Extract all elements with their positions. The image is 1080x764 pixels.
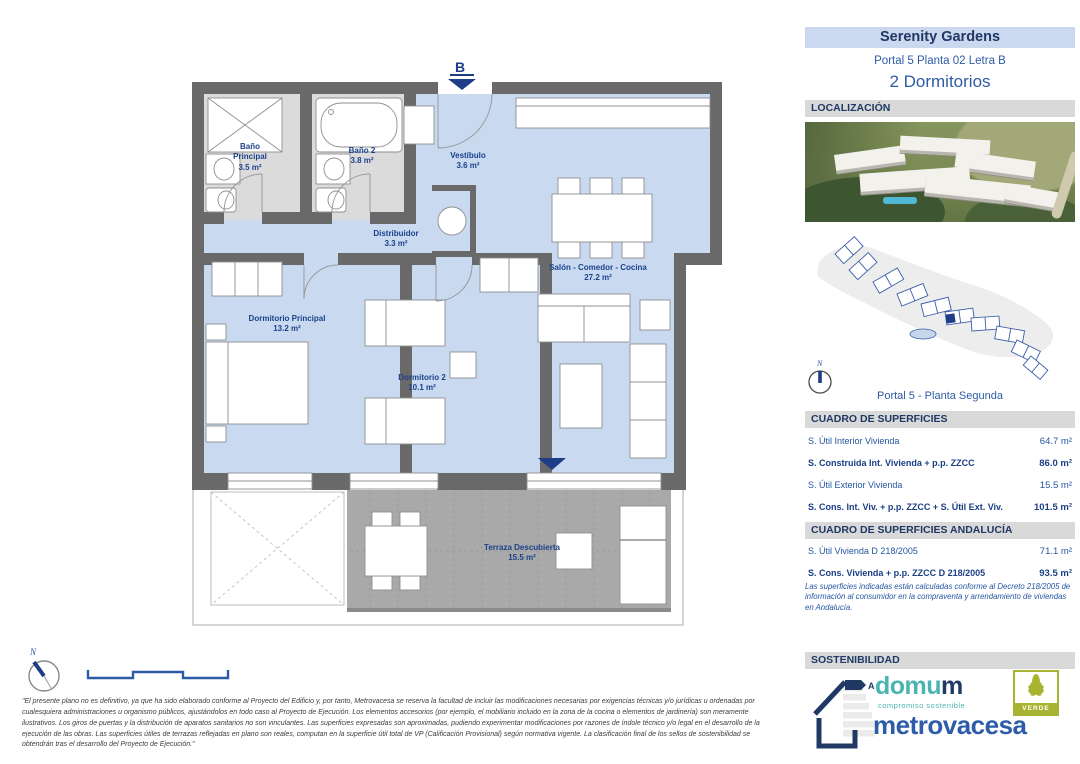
highlighted-unit xyxy=(945,313,955,323)
decree-note: Las superficies indicadas están calculad… xyxy=(805,582,1075,613)
coffee-table xyxy=(560,364,602,428)
pergola-area xyxy=(211,492,344,605)
window-principal xyxy=(228,473,312,489)
table-row: S. Cons. Int. Viv. + p.p. ZZCC + S. Útil… xyxy=(805,496,1075,518)
surfaces-andalucia-table: S. Útil Vivienda D 218/2005 71.1 m² S. C… xyxy=(805,540,1075,584)
sun-lounger xyxy=(620,506,666,604)
hall-closet xyxy=(404,106,434,144)
room-label-bano-principal: Baño Principal 3.5 m² xyxy=(223,142,277,173)
entrance-marker: B xyxy=(448,59,476,90)
energy-rating-house-icon: A xyxy=(809,668,875,752)
table-row: S. Útil Interior Vivienda 64.7 m² xyxy=(805,430,1075,452)
svg-text:A: A xyxy=(868,681,875,691)
metrovacesa-logo: metrovacesa xyxy=(873,710,1027,741)
pool xyxy=(883,197,917,204)
building-block xyxy=(834,145,906,174)
table-row: S. Útil Exterior Vivienda 15.5 m² xyxy=(805,474,1075,496)
room-label-salon: Salón - Comedor - Cocina 27.2 m² xyxy=(513,263,683,284)
bathtub xyxy=(316,98,402,152)
site-pool xyxy=(910,329,936,339)
sliding-door-salon xyxy=(527,473,661,489)
bath2-toilet xyxy=(316,188,346,212)
section-sostenibilidad: SOSTENIBILIDAD xyxy=(805,652,1075,669)
table-row: S. Construida Int. Vivienda + p.p. ZZCC … xyxy=(805,452,1075,474)
room-label-dormitorio-principal: Dormitorio Principal 13.2 m² xyxy=(222,314,352,335)
siteplan-compass: N xyxy=(805,358,835,398)
siteplan-caption: Portal 5 - Planta Segunda xyxy=(805,390,1075,402)
section-cuadro-superficies: CUADRO DE SUPERFICIES xyxy=(805,411,1075,428)
window-dorm2 xyxy=(350,473,438,489)
room-label-bano2: Baño 2 3.8 m² xyxy=(335,146,389,167)
room-label-dormitorio2: Dormitorio 2 10.1 m² xyxy=(377,373,467,394)
room-label-terraza: Terraza Descubierta 15.5 m² xyxy=(462,543,582,564)
room-label-distribuidor: Distribuidor 3.3 m² xyxy=(356,229,436,250)
project-title: Serenity Gardens xyxy=(805,27,1075,48)
side-table xyxy=(640,300,670,330)
svg-text:N: N xyxy=(816,359,823,368)
unit-reference: Portal 5 Planta 02 Letra B xyxy=(805,55,1075,67)
section-localizacion: LOCALIZACIÓN xyxy=(805,100,1075,117)
room-label-vestibulo: Vestíbulo 3.6 m² xyxy=(436,151,500,172)
north-compass: N xyxy=(29,647,59,691)
closet-principal xyxy=(212,262,282,296)
sustainability-logos: A domum compromiso sostenible metrovaces… xyxy=(805,668,1075,764)
bedrooms-count: 2 Dormitorios xyxy=(805,72,1075,92)
info-sidebar: Serenity Gardens Portal 5 Planta 02 Letr… xyxy=(805,0,1075,764)
north-label: N xyxy=(29,647,37,657)
tv-unit xyxy=(630,344,666,458)
section-cuadro-andalucia: CUADRO DE SUPERFICIES ANDALUCÍA xyxy=(805,522,1075,539)
bath1-toilet xyxy=(206,188,236,212)
scale-bar xyxy=(88,670,228,678)
sofa xyxy=(538,294,630,342)
surfaces-table: S. Útil Interior Vivienda 64.7 m² S. Con… xyxy=(805,430,1075,518)
table-row: S. Cons. Vivienda + p.p. ZZCC D 218/2005… xyxy=(805,562,1075,584)
entrance-label: B xyxy=(455,59,465,75)
site-plan xyxy=(805,230,1075,380)
leaf-icon xyxy=(1015,673,1057,705)
table-row: S. Útil Vivienda D 218/2005 71.1 m² xyxy=(805,540,1075,562)
aerial-photo xyxy=(805,122,1075,222)
floorplan-sheet: B N Baño Principal 3.5 m² Baño 2 3.8 m² xyxy=(0,0,1080,764)
verde-certification-badge: VERDE xyxy=(1013,670,1059,716)
water-heater xyxy=(438,207,466,235)
legal-disclaimer: "El presente plano no es definitivo, ya … xyxy=(22,697,772,751)
dining-table xyxy=(552,178,652,258)
kitchen-counter xyxy=(516,98,710,128)
domum-tagline: compromiso sostenible xyxy=(878,701,965,710)
floor-plan-area: B N Baño Principal 3.5 m² Baño 2 3.8 m² xyxy=(0,0,800,764)
bed-principal xyxy=(206,324,308,442)
domum-logo: domum xyxy=(875,672,963,701)
